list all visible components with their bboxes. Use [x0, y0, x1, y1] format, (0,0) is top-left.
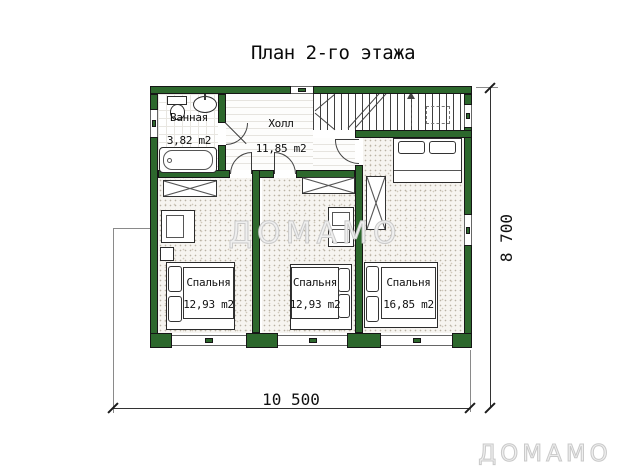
floor-plan-page: План 2-го этажа [0, 0, 630, 470]
door-leaf-bedroom-right [335, 139, 359, 140]
window-bottom-3-tick [413, 338, 421, 343]
wall-right-upper [464, 94, 472, 105]
wall-bottom-corner-left [150, 333, 172, 348]
extension-line-bottom-right [470, 350, 471, 412]
window-bottom-1-tick [205, 338, 213, 343]
window-left-tick [152, 120, 156, 127]
room-area-bathroom: 3,82 m2 [158, 134, 220, 147]
window-right-upper-tick [466, 113, 470, 119]
wall-top-right [313, 86, 472, 94]
wardrobe-icon [302, 177, 355, 194]
stair-direction-line [411, 97, 412, 126]
pillow-icon [338, 268, 350, 292]
room-label-bedroom-left: Спальня 12,93 m2 [183, 267, 234, 319]
pillow-icon [168, 266, 182, 292]
room-name: Спальня [293, 276, 337, 289]
room-area: 12,93 m2 [183, 298, 234, 311]
room-label-hall: Холл [246, 117, 316, 130]
page-title: План 2-го этажа [183, 42, 483, 64]
wall-bottom-pier-2 [347, 333, 381, 348]
room-label-bathroom: Ванная [158, 111, 220, 124]
bathtub-drain-icon [167, 158, 172, 163]
window-bottom-2-tick [309, 338, 317, 343]
pillow-icon [168, 296, 182, 322]
stair-landing-dashed [426, 106, 450, 124]
wall-bedrooms-left-mid [252, 170, 260, 333]
watermark-corner-logo: ДОМАМО [465, 441, 625, 467]
wall-bottom-pier-1 [246, 333, 278, 348]
room-name: Спальня [386, 276, 430, 289]
room-label-bedroom-middle: Спальня 12,93 m2 [291, 267, 339, 319]
sink-tap-icon [204, 94, 206, 100]
wardrobe-icon [163, 180, 217, 197]
wall-stair-bottom [355, 130, 472, 138]
room-area-hall: 11,85 m2 [240, 142, 322, 155]
room-area: 12,93 m2 [290, 298, 341, 311]
pillow-icon [366, 296, 379, 322]
extension-line-left-vertical [113, 228, 114, 413]
wall-left-upper [150, 94, 158, 110]
wall-bottom-corner-right [452, 333, 472, 348]
wall-top-left [150, 86, 291, 94]
bed-right-top-mattress-line [394, 170, 461, 171]
dimension-width-label: 10 500 [241, 390, 341, 409]
door-leaf-bedroom-left [251, 152, 252, 174]
watermark-center: ДОМАМО [150, 216, 480, 251]
window-top-tick [298, 88, 306, 92]
pillow-icon [366, 266, 379, 292]
wall-right-mid [464, 127, 472, 215]
pillow-icon [429, 141, 456, 154]
room-area: 16,85 m2 [383, 298, 434, 311]
room-name: Спальня [186, 276, 230, 289]
dimension-line-height [490, 88, 491, 408]
dimension-height-label: 8 700 [497, 203, 517, 273]
room-label-bedroom-right: Спальня 16,85 m2 [381, 267, 436, 319]
door-leaf-bedroom-middle [274, 152, 275, 174]
pillow-icon [398, 141, 425, 154]
extension-line-left [113, 228, 150, 229]
